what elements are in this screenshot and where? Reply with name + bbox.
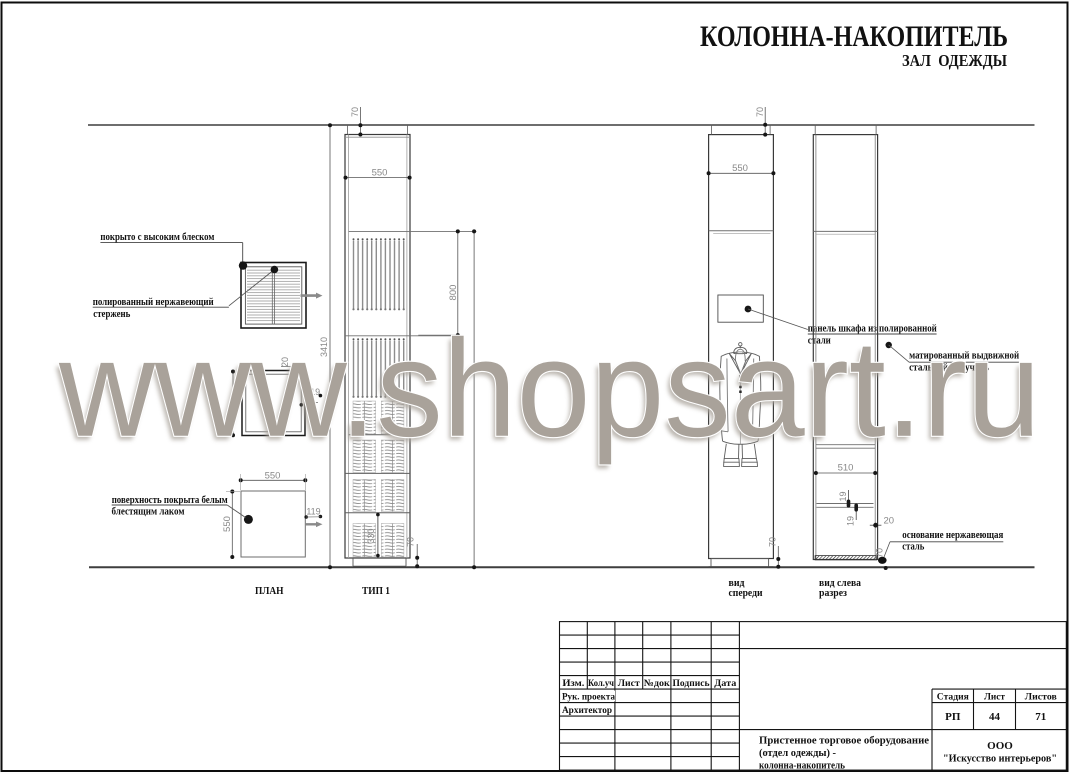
svg-text:РП: РП xyxy=(945,711,961,723)
svg-text:Листов: Листов xyxy=(1025,691,1057,702)
svg-text:вид: вид xyxy=(729,578,746,589)
svg-text:КОЛОННА-НАКОПИТЕЛЬ: КОЛОННА-НАКОПИТЕЛЬ xyxy=(700,20,1008,53)
svg-text:www.shopsart.ru: www.shopsart.ru xyxy=(58,311,1041,465)
svg-text:основание нержавеющая: основание нержавеющая xyxy=(902,530,1003,541)
svg-text:"Искусство интерьеров": "Искусство интерьеров" xyxy=(943,753,1057,764)
svg-text:поверхность покрыта белым: поверхность покрыта белым xyxy=(112,495,228,506)
svg-text:ТИП 1: ТИП 1 xyxy=(362,585,390,597)
svg-text:колонна-накопитель: колонна-накопитель xyxy=(759,760,846,771)
svg-text:119: 119 xyxy=(306,507,320,517)
svg-text:330: 330 xyxy=(366,528,376,543)
svg-text:70: 70 xyxy=(755,107,765,117)
svg-text:550: 550 xyxy=(372,167,388,178)
svg-text:ЗАЛ ОДЕЖДЫ: ЗАЛ ОДЕЖДЫ xyxy=(902,51,1007,70)
svg-text:19: 19 xyxy=(846,516,856,526)
svg-text:Кол.уч: Кол.уч xyxy=(588,678,614,689)
svg-text:Лист: Лист xyxy=(984,691,1005,702)
svg-text:разрез: разрез xyxy=(819,588,847,599)
svg-text:550: 550 xyxy=(222,516,233,532)
svg-text:71: 71 xyxy=(1035,711,1046,723)
svg-text:ПЛАН: ПЛАН xyxy=(255,585,284,597)
svg-text:70: 70 xyxy=(874,548,884,558)
svg-text:Пристенное торговое оборудован: Пристенное торговое оборудование xyxy=(759,736,929,747)
svg-text:20: 20 xyxy=(884,515,895,526)
svg-text:550: 550 xyxy=(265,470,281,481)
svg-text:70: 70 xyxy=(350,107,360,117)
svg-text:№док: №док xyxy=(644,678,670,689)
svg-text:550: 550 xyxy=(732,163,748,174)
svg-text:полированный нержавеющий: полированный нержавеющий xyxy=(93,297,214,308)
svg-text:Дата: Дата xyxy=(714,678,736,689)
svg-text:ООО: ООО xyxy=(987,740,1013,752)
svg-text:Лист: Лист xyxy=(618,678,640,689)
svg-text:Изм.: Изм. xyxy=(562,678,585,689)
svg-text:сталь: сталь xyxy=(902,542,925,553)
svg-text:19: 19 xyxy=(838,491,848,501)
svg-text:Подпись: Подпись xyxy=(673,678,710,689)
svg-text:70: 70 xyxy=(406,537,416,547)
svg-text:блестящим лаком: блестящим лаком xyxy=(112,507,185,518)
svg-text:70: 70 xyxy=(768,537,778,547)
svg-text:(отдел одежды) -: (отдел одежды) - xyxy=(759,748,837,759)
svg-text:44: 44 xyxy=(989,711,1001,723)
svg-text:Стадия: Стадия xyxy=(937,691,970,702)
svg-text:спереди: спереди xyxy=(729,588,763,599)
svg-text:800: 800 xyxy=(448,285,459,301)
svg-text:Архитектор: Архитектор xyxy=(562,705,613,716)
svg-text:покрыто с высоким блеском: покрыто с высоким блеском xyxy=(100,232,214,243)
svg-text:вид слева: вид слева xyxy=(819,578,861,589)
svg-text:Рук. проекта: Рук. проекта xyxy=(562,692,615,703)
